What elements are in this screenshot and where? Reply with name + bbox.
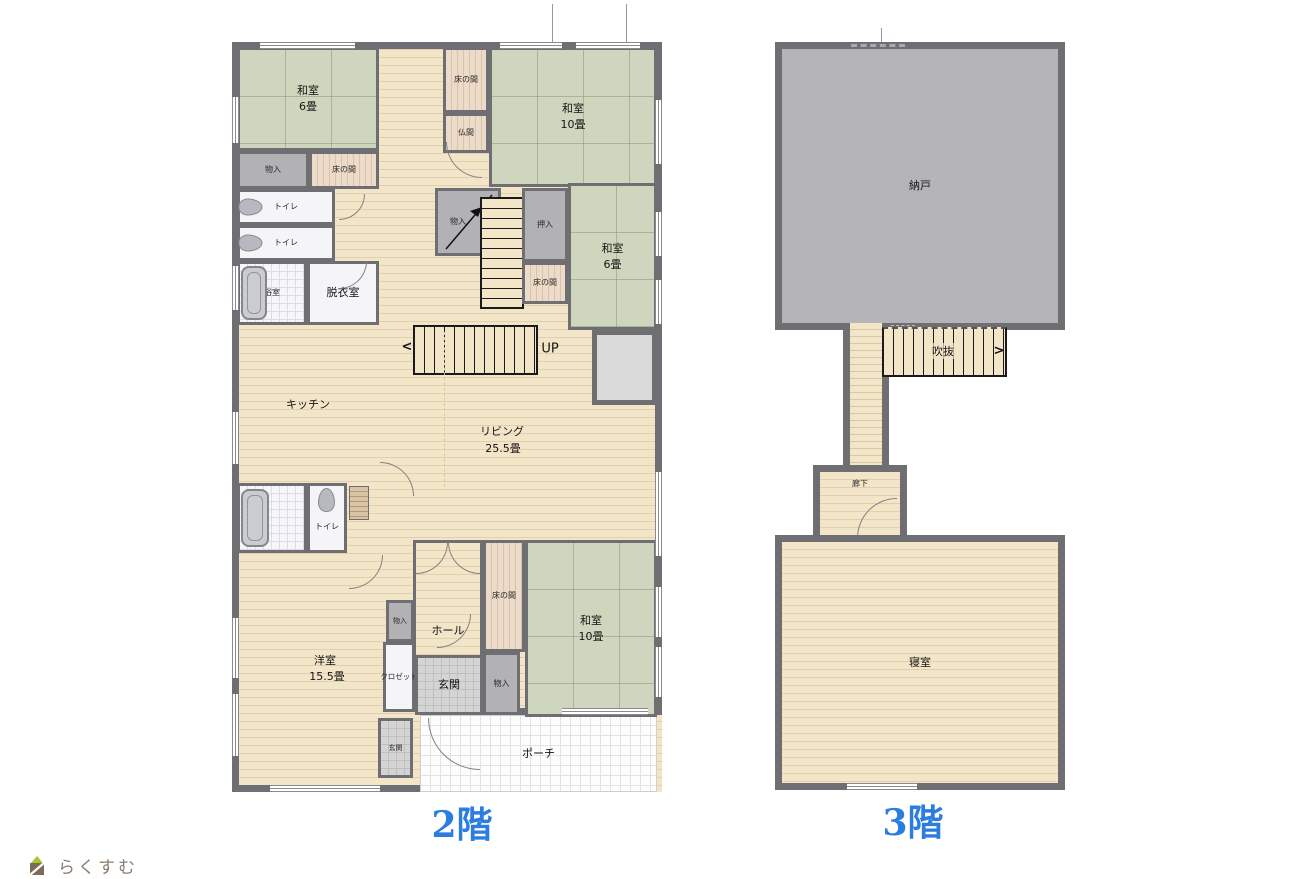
guide-line bbox=[626, 4, 627, 42]
room-label: 床の間 bbox=[492, 590, 516, 602]
room-size-living: 25.5畳 bbox=[485, 440, 521, 456]
room-label: 物入 bbox=[450, 216, 466, 228]
room-size-label: 6畳 bbox=[604, 257, 622, 273]
rakusumu-logo-icon bbox=[28, 856, 50, 876]
window-mark bbox=[655, 280, 662, 324]
window-mark bbox=[576, 42, 640, 49]
window-mark bbox=[655, 212, 662, 256]
window-mark bbox=[260, 42, 355, 49]
room-label: トイレ bbox=[274, 201, 298, 213]
window-mark bbox=[655, 100, 662, 164]
room-size-yoshitsu: 15.5畳 bbox=[309, 668, 345, 684]
room-void bbox=[592, 330, 657, 405]
room-tokonoma-top: 床の間 bbox=[443, 47, 489, 113]
room-label: トイレ bbox=[274, 237, 298, 249]
room-size-label: 6畳 bbox=[299, 99, 317, 115]
window-mark bbox=[232, 618, 239, 678]
room-tokonoma-bottom: 床の間 bbox=[483, 540, 525, 652]
window-mark bbox=[500, 42, 562, 49]
room-storage-hall: 物入 bbox=[386, 600, 414, 642]
room-oshiire: 押入 bbox=[522, 188, 568, 262]
room-label: トイレ bbox=[315, 521, 339, 533]
stairs-to-3f bbox=[480, 197, 524, 309]
room-label: 物入 bbox=[265, 164, 281, 176]
window-mark bbox=[655, 472, 662, 556]
window-mark bbox=[232, 412, 239, 464]
room-label: 和室 bbox=[297, 83, 319, 99]
stairs-up-from-1f bbox=[413, 325, 538, 375]
room-washitsu-6-topleft: 和室 6畳 bbox=[237, 47, 379, 151]
room-label: 床の間 bbox=[533, 277, 557, 289]
room-label-porch: ポーチ bbox=[522, 746, 555, 762]
room-label: 和室 bbox=[580, 613, 602, 629]
window-mark bbox=[232, 97, 239, 143]
room-label: 物入 bbox=[393, 616, 407, 626]
rakusumu-logo: らくすむ bbox=[28, 853, 138, 878]
door-arc bbox=[380, 462, 414, 496]
room-label: 廊下 bbox=[852, 478, 868, 490]
room-label: 納戸 bbox=[909, 178, 931, 194]
room-shinshitsu: 寝室 bbox=[775, 535, 1065, 790]
room-label: 玄関 bbox=[438, 677, 460, 693]
room-label-yoshitsu: 洋室 bbox=[314, 652, 336, 668]
room-label-kitchen: キッチン bbox=[286, 396, 330, 412]
window-mark bbox=[270, 785, 380, 792]
window-mark bbox=[232, 694, 239, 756]
bathtub-icon bbox=[241, 266, 267, 320]
floorplan-page: { "f2": { "title": "2階", "washitsu_tl": … bbox=[0, 0, 1297, 879]
toilet-icon bbox=[318, 488, 335, 512]
room-nando: 納戸 bbox=[775, 42, 1065, 330]
room-label: 寝室 bbox=[909, 655, 931, 671]
room-label: 押入 bbox=[537, 219, 553, 231]
window-mark bbox=[655, 647, 662, 697]
room-label-living: リビング bbox=[480, 423, 524, 439]
room-label: 仏間 bbox=[458, 127, 474, 139]
guide-line bbox=[552, 4, 553, 42]
room-label-fukinuke: 吹抜 bbox=[930, 343, 956, 359]
stairs-up-arrow: < bbox=[402, 340, 413, 355]
room-closet: クロゼット bbox=[383, 642, 415, 712]
room-genkan-outer: 玄関 bbox=[378, 718, 413, 778]
room-washitsu-10-topright: 和室 10畳 bbox=[489, 47, 657, 187]
bathtub-icon bbox=[241, 489, 269, 547]
room-storage-genkan: 物入 bbox=[483, 652, 520, 715]
fukinuke-arrow: > bbox=[994, 344, 1005, 359]
window-mark bbox=[232, 266, 239, 310]
floor-title-3f: 3階 bbox=[843, 794, 983, 846]
door-arc bbox=[339, 194, 365, 220]
shelf-icon bbox=[349, 486, 369, 520]
room-label: 床の間 bbox=[454, 74, 478, 86]
room-label: 和室 bbox=[602, 241, 624, 257]
room-size-label: 10畳 bbox=[561, 117, 586, 133]
door-arc bbox=[349, 555, 383, 589]
floorplan-2f: ポーチ 和室 6畳 物入 床の間 トイレ トイレ 浴室 脱衣室 床の間 仏間 和… bbox=[232, 42, 662, 792]
room-washitsu-10-bottomright: 和室 10畳 bbox=[525, 540, 657, 717]
door-arc bbox=[446, 142, 482, 178]
window-mark bbox=[562, 708, 648, 715]
room-label: クロゼット bbox=[380, 672, 418, 683]
room-tokonoma-topleft: 床の間 bbox=[309, 151, 379, 189]
window-mark bbox=[655, 587, 662, 637]
kitchen-living-divider bbox=[444, 332, 445, 487]
stairs-up-label: UP bbox=[541, 342, 558, 357]
room-label: 物入 bbox=[494, 678, 510, 690]
window-mark bbox=[847, 783, 917, 790]
floorplan-3f: 納戸 吹抜 > 廊下 寝室 bbox=[775, 42, 1065, 790]
room-size-label: 10畳 bbox=[579, 629, 604, 645]
floor-title-2f: 2階 bbox=[392, 796, 532, 848]
room-storage-topleft: 物入 bbox=[237, 151, 309, 189]
rakusumu-logo-text: らくすむ bbox=[58, 853, 138, 878]
room-genkan: 玄関 bbox=[415, 655, 483, 715]
room-label: 和室 bbox=[562, 101, 584, 117]
room-washitsu-6-right: 和室 6畳 bbox=[568, 183, 657, 330]
room-label: 床の間 bbox=[332, 164, 356, 176]
door-opening-dashed bbox=[851, 44, 905, 47]
room-tokonoma-mid: 床の間 bbox=[522, 262, 568, 304]
room-label: 玄関 bbox=[389, 743, 403, 753]
guide-line bbox=[881, 28, 882, 42]
